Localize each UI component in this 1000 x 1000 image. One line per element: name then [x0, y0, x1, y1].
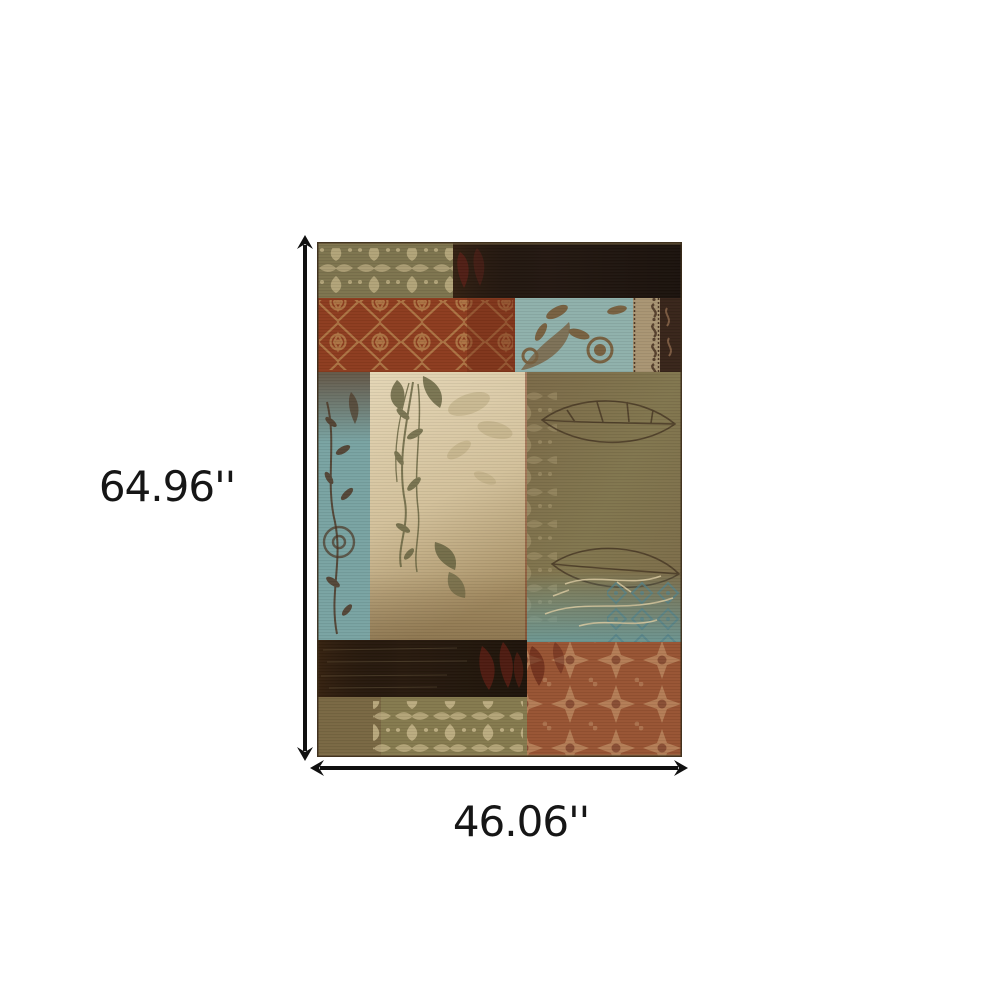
product-dimension-image: 64.96'' 46.06'' [0, 0, 1000, 1000]
rug-image [317, 242, 682, 757]
height-dimension-label: 64.96'' [52, 462, 282, 512]
width-dimension-label: 46.06'' [406, 797, 636, 847]
width-dimension-arrow [308, 759, 690, 777]
rug-weave-texture [317, 242, 682, 757]
height-dimension-arrow [296, 233, 314, 763]
